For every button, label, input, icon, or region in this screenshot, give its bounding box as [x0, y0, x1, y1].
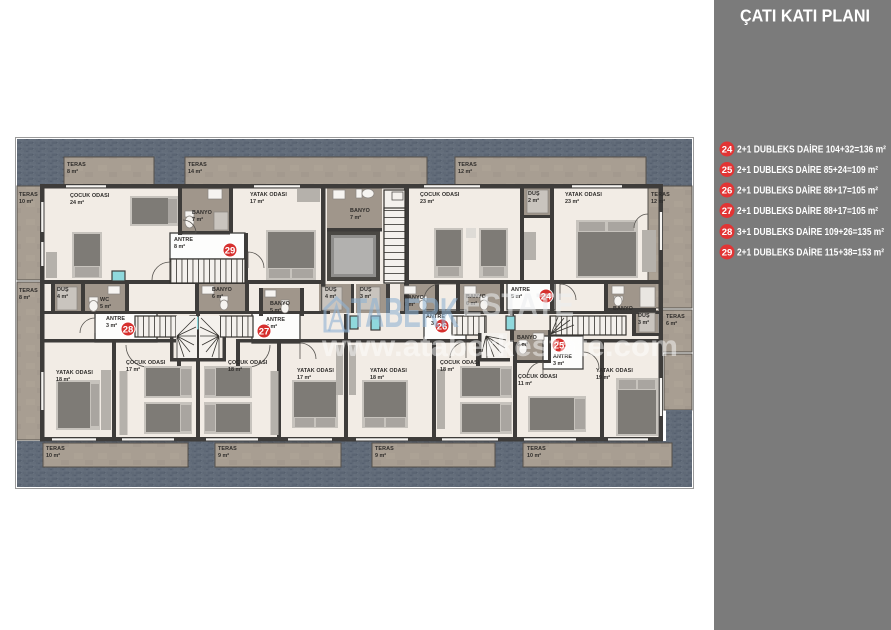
svg-text:TERAS: TERAS [19, 288, 38, 294]
svg-text:9 m²: 9 m² [375, 453, 386, 459]
svg-text:18 m²: 18 m² [56, 377, 70, 383]
svg-text:TERAS: TERAS [375, 446, 394, 452]
svg-text:17 m²: 17 m² [126, 367, 140, 373]
svg-text:9 m²: 9 m² [218, 453, 229, 459]
svg-text:TERAS: TERAS [19, 192, 38, 198]
svg-text:TERAS: TERAS [218, 446, 237, 452]
svg-text:TERAS: TERAS [188, 162, 207, 168]
svg-text:BANYO: BANYO [350, 208, 370, 214]
svg-text:10 m²: 10 m² [527, 453, 541, 459]
svg-text:18 m²: 18 m² [228, 367, 242, 373]
svg-text:TABERK: TABERK [351, 289, 459, 336]
svg-text:BANYO: BANYO [613, 306, 633, 312]
svg-text:28: 28 [123, 324, 134, 335]
svg-text:WC: WC [100, 297, 109, 303]
svg-text:ÇOCUK ODASI: ÇOCUK ODASI [228, 360, 268, 366]
svg-text:10 m²: 10 m² [46, 453, 60, 459]
svg-text:YATAK ODASI: YATAK ODASI [250, 192, 287, 198]
svg-text:2+1 DUBLEKS DAİRE 88+17=105 m²: 2+1 DUBLEKS DAİRE 88+17=105 m² [737, 204, 879, 217]
svg-text:24: 24 [722, 145, 733, 156]
svg-text:BANYO: BANYO [212, 287, 232, 293]
svg-text:23 m²: 23 m² [565, 199, 579, 205]
svg-text:YATAK ODASI: YATAK ODASI [596, 368, 633, 374]
svg-text:DUŞ: DUŞ [57, 287, 69, 293]
svg-text:TERAS: TERAS [527, 446, 546, 452]
svg-text:TERAS: TERAS [67, 162, 86, 168]
svg-text:2 m²: 2 m² [528, 198, 539, 204]
svg-text:3 m²: 3 m² [106, 323, 117, 329]
svg-text:www.ataberkestate.com: www.ataberkestate.com [321, 330, 678, 363]
svg-text:17 m²: 17 m² [250, 199, 264, 205]
svg-text:18 m²: 18 m² [370, 375, 384, 381]
svg-text:ANTRE: ANTRE [174, 237, 193, 243]
svg-text:YATAK ODASI: YATAK ODASI [297, 368, 334, 374]
svg-text:4 m²: 4 m² [57, 294, 68, 300]
svg-text:DUŞ: DUŞ [325, 287, 337, 293]
svg-text:YATAK ODASI: YATAK ODASI [370, 368, 407, 374]
svg-text:ÇATI KATI PLANI: ÇATI KATI PLANI [740, 6, 870, 26]
svg-text:TERAS: TERAS [651, 192, 670, 198]
svg-text:6 m²: 6 m² [212, 294, 223, 300]
svg-text:ÇOCUK ODASI: ÇOCUK ODASI [126, 360, 166, 366]
svg-text:18 m²: 18 m² [440, 367, 454, 373]
svg-text:ESTATE: ESTATE [462, 287, 574, 323]
svg-text:5 m²: 5 m² [100, 304, 111, 310]
svg-text:TERAS: TERAS [46, 446, 65, 452]
svg-text:TERAS: TERAS [458, 162, 477, 168]
svg-text:ANTRE: ANTRE [106, 316, 125, 322]
svg-text:25: 25 [722, 165, 733, 176]
svg-text:BANYO: BANYO [192, 210, 212, 216]
svg-text:7 m²: 7 m² [350, 215, 361, 221]
svg-text:YATAK ODASI: YATAK ODASI [565, 192, 602, 198]
svg-text:24 m²: 24 m² [70, 200, 84, 206]
svg-text:2+1 DUBLEKS DAİRE 115+38=153 m: 2+1 DUBLEKS DAİRE 115+38=153 m² [737, 246, 885, 259]
svg-text:10 m²: 10 m² [19, 199, 33, 205]
svg-text:3 m²: 3 m² [638, 320, 649, 326]
svg-text:29: 29 [722, 248, 733, 259]
svg-text:8 m²: 8 m² [19, 295, 30, 301]
svg-text:6 m²: 6 m² [666, 321, 677, 327]
svg-text:ÇOCUK ODASI: ÇOCUK ODASI [70, 193, 110, 199]
svg-text:ÇOCUK ODASI: ÇOCUK ODASI [420, 192, 460, 198]
svg-text:11 m²: 11 m² [518, 381, 532, 387]
svg-text:2+1 DUBLEKS DAİRE 85+24=109 m²: 2+1 DUBLEKS DAİRE 85+24=109 m² [737, 163, 879, 176]
svg-text:ÇOCUK ODASI: ÇOCUK ODASI [518, 374, 558, 380]
svg-text:12 m²: 12 m² [651, 199, 665, 205]
svg-text:5 m²: 5 m² [270, 308, 281, 314]
svg-text:BANYO: BANYO [270, 301, 290, 307]
svg-text:19 m²: 19 m² [596, 375, 610, 381]
svg-text:12 m²: 12 m² [458, 169, 472, 175]
svg-text:14 m²: 14 m² [188, 169, 202, 175]
svg-text:DUŞ: DUŞ [638, 313, 650, 319]
svg-text:27: 27 [722, 206, 733, 217]
svg-text:17 m²: 17 m² [297, 375, 311, 381]
svg-text:2+1 DUBLEKS DAİRE 104+32=136 m: 2+1 DUBLEKS DAİRE 104+32=136 m² [737, 143, 887, 156]
svg-text:7 m²: 7 m² [192, 217, 203, 223]
svg-text:8 m²: 8 m² [67, 169, 78, 175]
svg-text:3+1 DUBLEKS DAİRE 109+26=135 m: 3+1 DUBLEKS DAİRE 109+26=135 m² [737, 225, 885, 238]
svg-text:23 m²: 23 m² [420, 199, 434, 205]
svg-text:26: 26 [722, 186, 733, 197]
svg-text:28: 28 [722, 227, 733, 238]
svg-text:8 m²: 8 m² [174, 244, 185, 250]
svg-text:2+1 DUBLEKS DAİRE 88+17=105 m²: 2+1 DUBLEKS DAİRE 88+17=105 m² [737, 184, 879, 197]
svg-text:27: 27 [259, 326, 270, 337]
svg-text:29: 29 [225, 245, 236, 256]
svg-text:TERAS: TERAS [666, 314, 685, 320]
svg-text:ANTRE: ANTRE [266, 317, 285, 323]
svg-text:YATAK ODASI: YATAK ODASI [56, 370, 93, 376]
svg-text:DUŞ: DUŞ [528, 191, 540, 197]
